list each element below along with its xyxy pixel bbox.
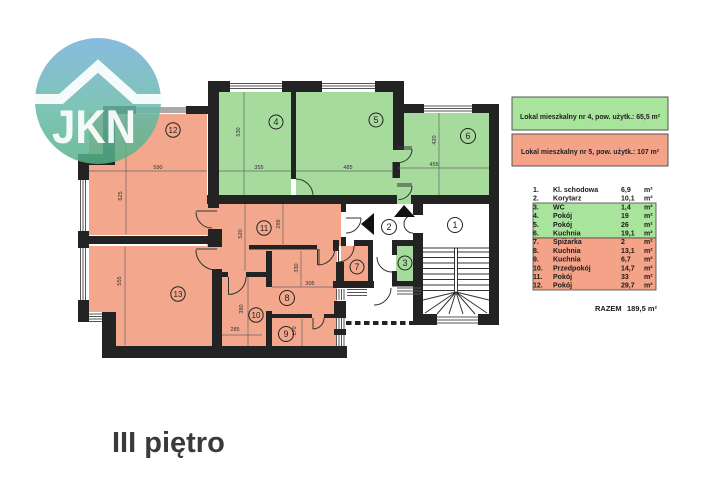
svg-text:Korytarz: Korytarz	[553, 196, 582, 203]
svg-text:6: 6	[465, 131, 470, 141]
svg-text:485: 485	[343, 165, 352, 171]
svg-text:Pokój: Pokój	[553, 283, 572, 290]
svg-text:1.: 1.	[533, 187, 539, 194]
svg-text:Spiżarka: Spiżarka	[553, 239, 582, 246]
svg-text:RAZEM: RAZEM	[595, 304, 622, 313]
svg-text:11: 11	[260, 224, 269, 233]
svg-text:3: 3	[402, 258, 407, 268]
svg-text:m²: m²	[644, 222, 653, 229]
svg-text:5.: 5.	[533, 222, 539, 229]
svg-text:9: 9	[283, 329, 288, 339]
svg-text:11.: 11.	[533, 274, 542, 281]
svg-text:m²: m²	[644, 239, 653, 246]
svg-text:2: 2	[621, 239, 625, 246]
svg-text:JKN: JKN	[52, 100, 136, 153]
svg-text:10.: 10.	[533, 265, 543, 272]
svg-text:285: 285	[230, 327, 239, 333]
svg-text:420: 420	[432, 135, 438, 144]
svg-text:33: 33	[621, 274, 629, 281]
svg-text:m²: m²	[644, 265, 653, 272]
svg-text:Kuchnia: Kuchnia	[553, 231, 581, 238]
svg-text:625: 625	[118, 191, 124, 200]
svg-text:286: 286	[276, 219, 282, 228]
svg-text:520: 520	[238, 229, 244, 238]
svg-text:8.: 8.	[533, 248, 539, 255]
svg-text:26: 26	[621, 222, 629, 229]
svg-text:10,1: 10,1	[621, 196, 635, 203]
svg-text:29,7: 29,7	[621, 283, 635, 290]
svg-text:189,5 m²: 189,5 m²	[627, 304, 658, 313]
svg-text:Pokój: Pokój	[553, 213, 572, 220]
svg-text:m²: m²	[644, 196, 653, 203]
svg-text:590: 590	[153, 165, 162, 171]
svg-text:12.: 12.	[533, 283, 543, 290]
svg-text:8: 8	[284, 293, 289, 303]
svg-text:m²: m²	[644, 187, 653, 194]
svg-text:1,4: 1,4	[621, 204, 631, 211]
svg-text:330: 330	[294, 263, 300, 272]
svg-text:m²: m²	[644, 283, 653, 290]
svg-text:m²: m²	[644, 213, 653, 220]
svg-text:Pokój: Pokój	[553, 222, 572, 229]
svg-text:2: 2	[386, 222, 391, 232]
svg-text:2.: 2.	[533, 196, 539, 203]
svg-text:6,7: 6,7	[621, 257, 631, 264]
svg-text:m²: m²	[644, 248, 653, 255]
svg-text:Pokój: Pokój	[553, 274, 572, 281]
svg-text:5: 5	[373, 115, 378, 125]
svg-text:10: 10	[252, 311, 261, 320]
svg-text:12: 12	[169, 126, 178, 135]
svg-text:Kuchnia: Kuchnia	[553, 257, 581, 264]
svg-text:14,7: 14,7	[621, 265, 635, 272]
svg-text:555: 555	[117, 276, 123, 285]
svg-text:1: 1	[452, 220, 457, 230]
svg-text:Przedpokój: Przedpokój	[553, 265, 591, 272]
svg-text:m²: m²	[644, 231, 653, 238]
svg-text:455: 455	[429, 162, 438, 168]
svg-text:7: 7	[354, 262, 359, 272]
svg-text:Lokal mieszkalny nr 4, pow. uż: Lokal mieszkalny nr 4, pow. użytk.: 65,5…	[520, 112, 660, 121]
svg-text:9.: 9.	[533, 257, 539, 264]
svg-text:19: 19	[621, 213, 629, 220]
svg-text:19,1: 19,1	[621, 231, 635, 238]
svg-text:13: 13	[174, 290, 183, 299]
svg-text:530: 530	[236, 127, 242, 136]
svg-text:380: 380	[239, 304, 245, 313]
svg-text:m²: m²	[644, 204, 653, 211]
svg-text:4.: 4.	[533, 213, 539, 220]
svg-text:Kl. schodowa: Kl. schodowa	[553, 187, 598, 194]
svg-text:Lokal mieszkalny nr 5, pow. uż: Lokal mieszkalny nr 5, pow. użytk.: 107 …	[521, 147, 659, 156]
svg-text:3.: 3.	[533, 204, 539, 211]
svg-text:305: 305	[305, 281, 314, 287]
svg-text:6,9: 6,9	[621, 187, 631, 194]
svg-text:13,1: 13,1	[621, 248, 635, 255]
svg-text:6.: 6.	[533, 231, 539, 238]
svg-text:355: 355	[254, 165, 263, 171]
svg-text:III piętro: III piętro	[112, 427, 225, 459]
svg-text:4: 4	[273, 117, 278, 127]
svg-text:WC: WC	[553, 204, 565, 211]
svg-text:Kuchnia: Kuchnia	[553, 248, 581, 255]
svg-text:m²: m²	[644, 274, 653, 281]
svg-text:m²: m²	[644, 257, 653, 264]
svg-text:7.: 7.	[533, 239, 539, 246]
